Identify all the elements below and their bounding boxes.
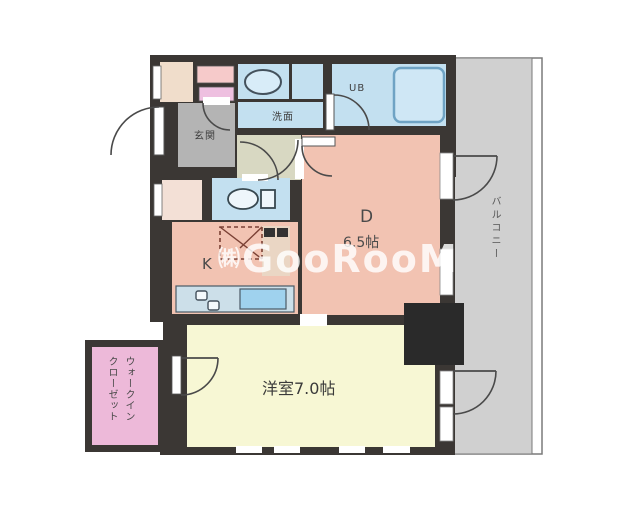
- bathtub: [394, 68, 444, 122]
- entrance-closet: [160, 62, 193, 102]
- walk-in-closet-label-line2: クローゼット: [103, 356, 120, 422]
- kitchen-label: K: [202, 255, 212, 273]
- toilet-icon: [228, 189, 275, 209]
- pipe-space: [404, 303, 464, 365]
- water-heater: [264, 228, 275, 237]
- washroom-divider: [238, 99, 323, 102]
- entrance-label: 玄関: [194, 127, 216, 142]
- watermark: ㈱ GooRooM: [218, 240, 459, 278]
- sink-icon: [240, 289, 286, 309]
- washroom-label: 洗面: [272, 108, 294, 123]
- walk-in-closet-label-line1: ウォークイン: [120, 356, 137, 422]
- washing-machine-icon: [245, 70, 281, 94]
- western-room-label: 洋室7.0帖: [262, 375, 335, 399]
- water-heater: [277, 228, 288, 237]
- washroom-divider: [289, 64, 292, 99]
- watermark-prefix: ㈱: [218, 241, 242, 278]
- mid-closet: [162, 180, 202, 220]
- floor-plan: 玄関 洗面 UB D 6.5帖 K 洋室7.0帖 バルコニー ウォークイン クロ…: [0, 0, 632, 511]
- watermark-text: GooRooM: [242, 240, 459, 278]
- unit-bath-label: UB: [349, 83, 365, 94]
- dining-label: D: [360, 207, 373, 227]
- shelf-upper: [197, 66, 234, 83]
- balcony-label: バルコニー: [487, 196, 502, 261]
- walk-in-closet-label: ウォークイン クローゼット: [103, 356, 137, 422]
